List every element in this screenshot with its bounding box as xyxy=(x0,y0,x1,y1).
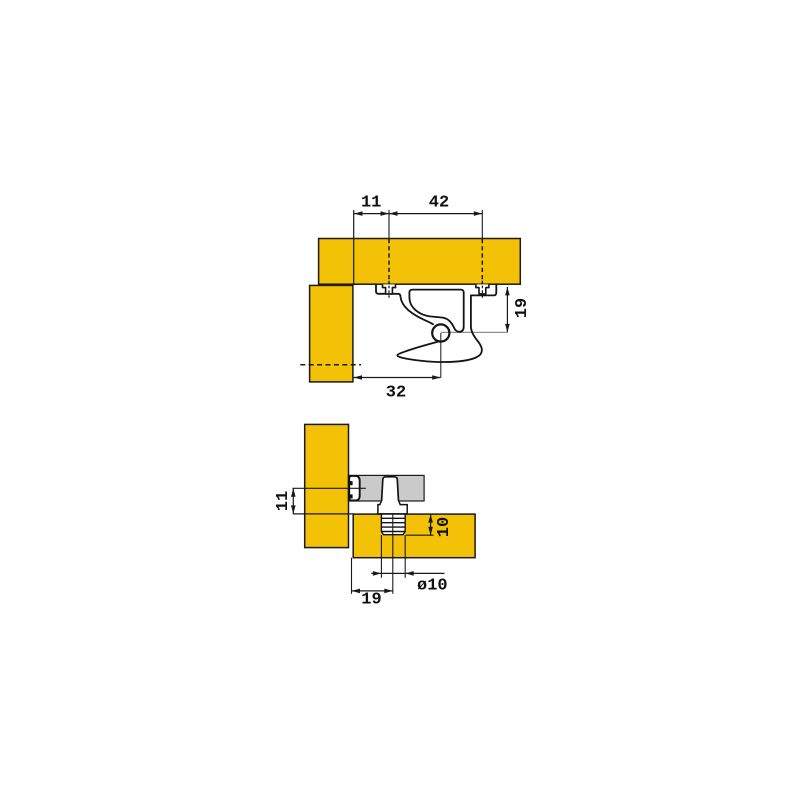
svg-text:10: 10 xyxy=(435,517,454,537)
svg-text:19: 19 xyxy=(361,591,381,610)
svg-text:ø10: ø10 xyxy=(417,576,448,595)
svg-text:42: 42 xyxy=(429,193,449,212)
svg-text:11: 11 xyxy=(361,193,381,212)
svg-text:19: 19 xyxy=(513,298,532,318)
svg-text:32: 32 xyxy=(386,384,406,403)
svg-text:11: 11 xyxy=(274,491,293,511)
